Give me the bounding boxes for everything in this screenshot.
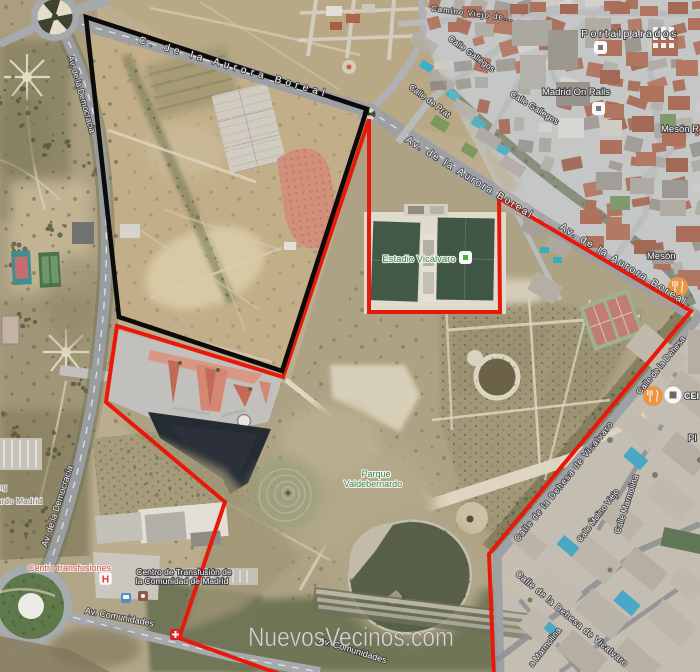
svg-text:NuevosVecinos.com: NuevosVecinos.com <box>248 622 454 652</box>
